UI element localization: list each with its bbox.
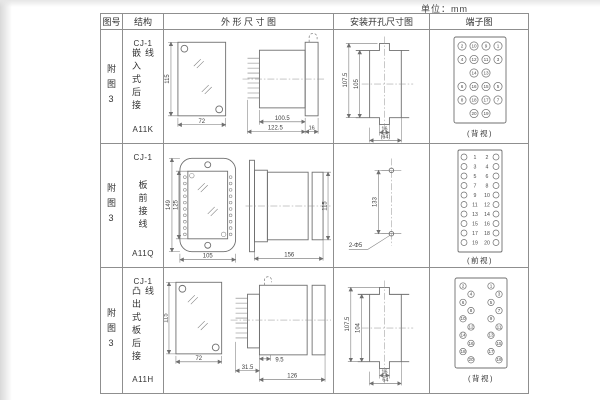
terminal-pin-number: 10 <box>460 316 466 321</box>
row2-mounting-cell: 133 2-Φ5 <box>334 144 430 268</box>
row1-structure-desc: 嵌入式后接线 <box>130 48 156 125</box>
front-terminal-dot <box>229 213 232 216</box>
front-terminal-dot <box>229 194 232 197</box>
terminal-pin-number: 19 <box>483 111 489 116</box>
terminal-pin-number: 4 <box>470 292 473 297</box>
terminal-pin-number: 6 <box>486 173 489 179</box>
terminal-view-caption: (背视) <box>468 373 494 383</box>
row3-code: A11H <box>132 375 153 384</box>
dim-cutout-width: 64 <box>382 377 388 383</box>
dim-side-length: 156 <box>284 252 295 258</box>
dim-plate-width: 105 <box>203 253 214 259</box>
outline-drawing-a11h: 115 72 9.5 31.5 126 <box>164 268 333 393</box>
terminal-pin <box>461 230 467 236</box>
terminal-pin <box>461 220 467 226</box>
terminal-pin-number: 6 <box>461 84 464 89</box>
dimension-spec-table: 图号 结构 外 形 尺 寸 图 安装开孔尺寸图 端子图 附图3 CJ-1 嵌入式… <box>100 13 529 394</box>
front-terminal-dot <box>229 175 232 178</box>
terminal-pin <box>461 211 467 217</box>
dim-window-height: 125 <box>173 199 179 210</box>
terminal-pin-number: 2 <box>486 154 489 160</box>
terminal-pin-number: 8 <box>470 308 473 313</box>
row1-mounting-cell: 107.5 105 16 (64) <box>334 30 430 144</box>
row3-structure-desc: 凸出式板后接线 <box>130 286 156 375</box>
outline-drawing-a11k: 115 72 100.5 122.5 16 <box>164 30 333 144</box>
outline-drawing-a11q: 149 125 105 115 156 <box>164 144 333 268</box>
terminal-pin-number: 3 <box>497 57 500 62</box>
dim-cutout-outer-height: 107.5 <box>343 71 349 87</box>
terminal-pin <box>461 163 467 169</box>
row2-fig-no-cell: 附图3 <box>101 144 123 268</box>
row3-terminal-cell: 2468101214161820135791113151719 (背视) <box>430 268 528 393</box>
terminal-pin-number: 10 <box>484 192 490 198</box>
dim-plate-height: 149 <box>166 199 172 210</box>
terminal-pin-number: 7 <box>497 97 500 102</box>
terminal-pin-number: 2 <box>462 283 465 288</box>
terminal-pin <box>493 163 499 169</box>
terminal-pin <box>493 192 499 198</box>
header-mounting-dims: 安装开孔尺寸图 <box>334 14 430 30</box>
terminal-pin-number: 5 <box>474 173 477 179</box>
front-terminal-dot <box>229 182 232 185</box>
header-terminal-diagram: 端子图 <box>430 14 528 30</box>
terminal-pin-number: 3 <box>474 164 477 170</box>
front-terminal-dot <box>229 226 232 229</box>
terminal-pin <box>461 201 467 207</box>
front-view <box>166 282 222 364</box>
terminal-pin-number: 13 <box>488 333 494 338</box>
front-terminal-dot <box>183 188 186 191</box>
terminal-pin <box>461 182 467 188</box>
row2-fig-no: 附图3 <box>105 183 118 229</box>
terminal-pin <box>461 192 467 198</box>
terminal-pin-number: 3 <box>498 292 501 297</box>
row2-outline-cell: 149 125 105 115 156 <box>164 144 334 268</box>
dim-front-height: 115 <box>165 73 171 83</box>
terminal-pin <box>493 182 499 188</box>
terminal-pin-number: 17 <box>483 97 489 102</box>
dim-hole-span: 133 <box>373 196 379 207</box>
front-terminal-dot <box>183 175 186 178</box>
terminal-pin <box>461 173 467 179</box>
terminal-pin-number: 5 <box>490 300 493 305</box>
dim-total-length: 122.5 <box>268 125 284 131</box>
header-fig-no: 图号 <box>101 14 123 30</box>
terminal-pin-number: 19 <box>472 240 478 246</box>
terminal-pin-number: 4 <box>461 57 464 62</box>
terminal-pin-number: 1 <box>474 154 477 160</box>
dim-notch-width: 16 <box>381 126 387 132</box>
terminal-pin-number: 18 <box>471 97 477 102</box>
front-terminal-dot <box>183 207 186 210</box>
row3-fig-no: 附图3 <box>105 308 118 354</box>
terminal-pin-number: 9 <box>490 316 493 321</box>
terminal-diagram-a11k: 2109141211314136161558181772019 (背视) <box>430 30 528 144</box>
terminal-pin-number: 2 <box>461 43 464 48</box>
row3-model: CJ-1 <box>134 277 153 286</box>
terminal-pin-number: 15 <box>496 341 502 346</box>
terminal-pin-number: 15 <box>472 221 478 227</box>
terminal-pin <box>493 230 499 236</box>
dim-cutout-inner-height: 104 <box>356 322 362 333</box>
row1-model: CJ-1 <box>134 39 153 48</box>
row3-mounting-cell: 107.5 104 16 64 <box>334 268 430 393</box>
page-edge-shadow-top <box>0 0 600 7</box>
terminal-pin-number: 16 <box>468 341 474 346</box>
terminal-pin-number: 17 <box>488 349 494 354</box>
terminal-pin-number: 12 <box>484 202 490 208</box>
dim-pin-length: 31.5 <box>242 365 254 371</box>
terminal-pin-number: 11 <box>472 202 477 208</box>
dim-flange-width: 16 <box>309 125 315 131</box>
terminal-pin <box>493 239 499 245</box>
page-edge-shadow-left <box>0 0 12 400</box>
front-terminal-dots <box>183 175 232 235</box>
header-structure: 结构 <box>123 14 164 30</box>
row3-structure-cell: CJ-1 凸出式板后接线 A11H <box>123 268 164 393</box>
terminal-view-caption: (背视) <box>467 128 493 138</box>
terminal-pin-number: 15 <box>483 84 489 89</box>
terminal-pin-number: 9 <box>474 192 477 198</box>
terminal-pin-number: 8 <box>461 97 464 102</box>
hole-size-label: 2-Φ5 <box>349 243 363 249</box>
mounting-drawing-a11q: 133 2-Φ5 <box>334 144 429 268</box>
row1-fig-no-cell: 附图3 <box>101 30 123 144</box>
front-terminal-dot <box>229 201 232 204</box>
terminal-pin <box>493 220 499 226</box>
header-outline-dims: 外 形 尺 寸 图 <box>164 14 334 30</box>
side-view <box>246 160 331 260</box>
terminal-pin-number: 10 <box>471 43 477 48</box>
terminal-pins-staggered: 2468101214161820135791113151719 <box>460 283 502 363</box>
row3-fig-no-cell: 附图3 <box>101 268 123 393</box>
front-terminal-dot <box>183 226 186 229</box>
row2-structure-desc: 板前接线 <box>137 180 150 232</box>
row1-structure-cell: CJ-1 嵌入式后接线 A11K <box>123 30 164 144</box>
dim-cutout-outer-height: 107.5 <box>345 316 351 332</box>
terminal-pin <box>493 211 499 217</box>
front-terminal-dot <box>183 194 186 197</box>
row1-terminal-cell: 2109141211314136161558181772019 (背视) <box>430 30 528 144</box>
terminal-pin-number: 18 <box>484 230 490 236</box>
front-view <box>168 42 226 127</box>
terminal-pin-number: 14 <box>460 333 466 338</box>
dim-body-length: 126 <box>287 374 298 380</box>
row2-structure-cell: CJ-1 板前接线 A11Q <box>123 144 164 268</box>
row1-fig-no: 附图3 <box>105 64 118 110</box>
terminal-pin-number: 11 <box>497 324 502 329</box>
row1-outline-cell: 115 72 100.5 122.5 16 <box>164 30 334 144</box>
dim-side-height: 115 <box>323 200 329 210</box>
terminal-pin <box>461 154 467 160</box>
terminal-pin-number: 16 <box>471 84 477 89</box>
row2-model: CJ-1 <box>134 153 153 162</box>
terminal-view-caption: (前视) <box>467 255 493 265</box>
terminal-pin-number: 13 <box>472 211 478 217</box>
front-terminal-dot <box>183 233 186 236</box>
terminal-pin-number: 5 <box>497 84 500 89</box>
terminal-pin-number: 1 <box>490 283 493 288</box>
dim-step: 9.5 <box>275 357 284 363</box>
terminal-diagram-a11h: 2468101214161820135791113151719 (背视) <box>430 268 528 393</box>
terminal-pin-number: 20 <box>471 111 477 116</box>
terminal-pins-pairs: 1234567891011121314151617181920 <box>461 154 499 246</box>
dim-notch-width: 16 <box>381 370 387 376</box>
terminal-pin-number: 19 <box>496 357 502 362</box>
front-terminal-dot <box>229 233 232 236</box>
mounting-drawing-a11h: 107.5 104 16 64 <box>334 268 429 393</box>
terminal-pin-number: 6 <box>462 300 465 305</box>
terminal-pin-number: 7 <box>498 308 501 313</box>
terminal-pin <box>493 154 499 160</box>
terminal-pins-grid: 2109141211314136161558181772019 <box>458 41 502 117</box>
terminal-pin-number: 16 <box>484 221 490 227</box>
terminal-pin-number: 1 <box>497 43 500 48</box>
dim-front-width: 72 <box>195 356 202 362</box>
front-terminal-dot <box>229 207 232 210</box>
front-terminal-dot <box>183 220 186 223</box>
terminal-pin <box>461 239 467 245</box>
row2-terminal-cell: 1234567891011121314151617181920 (前视) <box>430 144 528 268</box>
terminal-pin-number: 14 <box>471 70 477 75</box>
dim-cutout-width: (64) <box>381 134 391 140</box>
terminal-pin <box>493 173 499 179</box>
row1-code: A11K <box>133 125 154 134</box>
terminal-pin-number: 8 <box>486 183 489 189</box>
row2-code: A11Q <box>132 249 154 258</box>
terminal-pin-number: 20 <box>468 357 474 362</box>
terminal-pin-number: 4 <box>486 164 489 170</box>
dim-body-length: 100.5 <box>275 115 291 121</box>
front-terminal-dot <box>183 201 186 204</box>
terminal-pin-number: 12 <box>471 57 477 62</box>
terminal-pin-number: 17 <box>472 230 478 236</box>
front-terminal-dot <box>183 182 186 185</box>
terminal-pin-number: 13 <box>483 70 489 75</box>
terminal-pin-number: 14 <box>484 211 490 217</box>
front-terminal-dot <box>229 188 232 191</box>
terminal-pin-number: 12 <box>468 324 474 329</box>
front-terminal-dot <box>183 213 186 216</box>
terminal-pin-number: 11 <box>484 57 489 62</box>
front-terminal-dot <box>229 220 232 223</box>
dim-front-height: 115 <box>164 313 169 323</box>
terminal-pin-number: 9 <box>485 43 488 48</box>
terminal-pin <box>493 201 499 207</box>
row3-outline-cell: 115 72 9.5 31.5 126 <box>164 268 334 393</box>
terminal-pin-number: 20 <box>484 240 490 246</box>
terminal-diagram-a11q: 1234567891011121314151617181920 (前视) <box>430 144 528 268</box>
dim-front-width: 72 <box>198 118 205 124</box>
mounting-drawing-a11k: 107.5 105 16 (64) <box>334 30 429 144</box>
dim-cutout-inner-height: 105 <box>354 78 360 89</box>
terminal-pin-number: 18 <box>460 349 466 354</box>
terminal-pin-number: 7 <box>474 183 477 189</box>
